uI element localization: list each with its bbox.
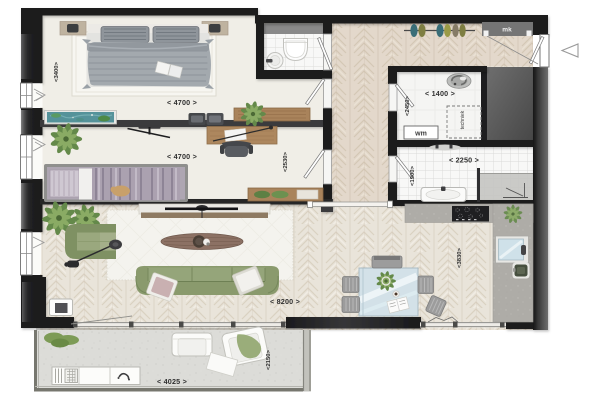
svg-text:< 1400 >: < 1400 >: [425, 89, 455, 98]
svg-text:< 4700 >: < 4700 >: [167, 152, 197, 161]
svg-text:<3400>: <3400>: [54, 61, 60, 82]
svg-text:<1900>: <1900>: [410, 165, 416, 186]
svg-text:techniek: techniek: [460, 110, 466, 129]
svg-text:< 4025 >: < 4025 >: [157, 377, 187, 386]
svg-text:<2530>: <2530>: [283, 151, 289, 172]
svg-text:< 4700 >: < 4700 >: [167, 98, 197, 107]
svg-text:<3830>: <3830>: [457, 247, 463, 268]
svg-text:mk: mk: [502, 27, 512, 34]
svg-text:wm: wm: [414, 131, 427, 138]
svg-text:<2450>: <2450>: [405, 95, 411, 116]
svg-text:< 8200 >: < 8200 >: [270, 297, 300, 306]
svg-text:< 2250 >: < 2250 >: [449, 156, 479, 165]
svg-text:<2150>: <2150>: [266, 349, 272, 370]
